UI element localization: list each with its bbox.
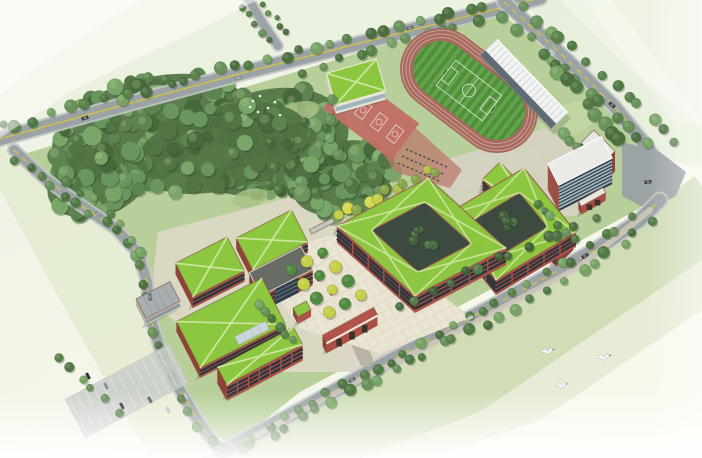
fade-right [646, 0, 702, 458]
fade-bottom [0, 392, 702, 458]
campus-scene-canvas [0, 0, 702, 458]
school-campus-aerial-rendering [0, 0, 702, 458]
